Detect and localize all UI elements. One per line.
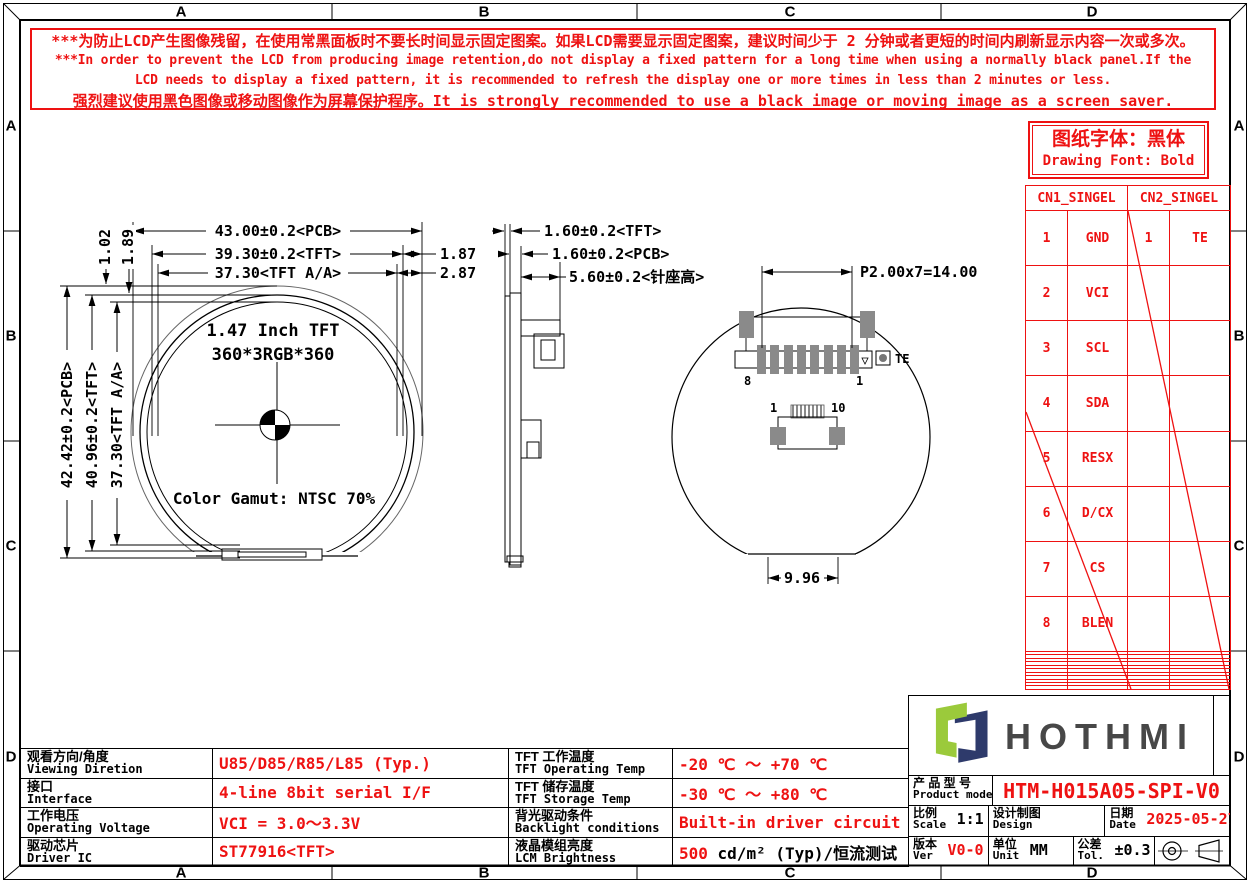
spec-value: U85/D85/R85/L85 (Typ.) bbox=[213, 749, 509, 779]
cn2-pin-no bbox=[1128, 431, 1170, 486]
zone-right-a: A bbox=[1234, 118, 1245, 135]
design-label-en: Design bbox=[993, 819, 1041, 831]
dim-flat-bottom: 9.96 bbox=[784, 569, 820, 587]
warning-line-1: ***为防止LCD产生图像残留，在使用常黑面板时不要长时间显示固定图案。如果LC… bbox=[32, 31, 1214, 51]
product-model-value: HTM-H015A05-SPI-V0 bbox=[993, 776, 1230, 805]
spec-label-en: Interface bbox=[27, 793, 206, 806]
front-view-drawing: 1.47 Inch TFT 360*3RGB*360 Color Gamut: … bbox=[120, 286, 435, 582]
p1-label: 1 bbox=[770, 401, 777, 415]
spec-label-en: Backlight conditions bbox=[515, 822, 666, 835]
spec-row-voltage: 工作电压Operating Voltage VCI = 3.0～3.3V 背光驱… bbox=[21, 808, 909, 838]
cn1-pin-no: 7 bbox=[1026, 541, 1068, 596]
spec-label-cn: 液晶模组亮度 bbox=[515, 839, 666, 852]
front-view-title: 1.47 Inch TFT bbox=[206, 321, 339, 341]
dim-height-tft: 40.96±0.2<TFT> bbox=[83, 362, 101, 488]
projection-method-icon bbox=[1155, 837, 1229, 865]
warning-line-3: LCD needs to display a fixed pattern, it… bbox=[32, 71, 1214, 91]
logo-row-divider bbox=[1213, 696, 1214, 776]
pin-row: 6D/CX bbox=[1026, 486, 1231, 541]
scale-design-date-row: 比例Scale 1:1 设计制图Design 日期Date 2025-05-27 bbox=[909, 806, 1230, 837]
cn2-pin-name bbox=[1170, 376, 1231, 431]
hothmi-logo-icon bbox=[917, 698, 1003, 776]
cn1-pin-name: SCL bbox=[1068, 321, 1128, 376]
spec-label-en: TFT Operating Temp bbox=[515, 763, 666, 776]
cn1-pin-no: 1 bbox=[1026, 211, 1068, 266]
pin-row: 8BLEN bbox=[1026, 596, 1231, 651]
spec-value: -20 ℃ ～ +70 ℃ bbox=[673, 749, 909, 779]
cn2-pin-name bbox=[1170, 431, 1231, 486]
engineering-drawing-canvas: 1.47 Inch TFT 360*3RGB*360 Color Gamut: … bbox=[0, 0, 1250, 883]
cn1-pin-no: 5 bbox=[1026, 431, 1068, 486]
tol-label-en: Tol. bbox=[1078, 850, 1105, 862]
dim-connector-pitch: P2.00x7=14.00 bbox=[860, 263, 977, 281]
zone-bottom-b: B bbox=[479, 865, 490, 882]
te-pad-label: TE bbox=[895, 352, 909, 366]
cn1-pin-name: BLEN bbox=[1068, 596, 1128, 651]
side-view-drawing: 1.60±0.2<TFT> 1.60±0.2<PCB> 5.60±0.2<针座高… bbox=[492, 222, 704, 567]
pin1-label: 1 bbox=[856, 374, 863, 388]
font-note-en: Drawing Font: Bold bbox=[1033, 152, 1204, 170]
spec-label-en: Operating Voltage bbox=[27, 822, 206, 835]
cn1-header: CN1_SINGEL bbox=[1026, 186, 1128, 211]
zone-top-c: C bbox=[785, 4, 796, 21]
zone-bottom-d: D bbox=[1087, 865, 1098, 882]
spec-value: 500 cd/m² (Typ)/恒流测试 bbox=[673, 837, 909, 867]
cn2-pin-name bbox=[1170, 486, 1231, 541]
dim-top-2: 1.89 bbox=[119, 229, 137, 265]
spec-label-en: Driver IC bbox=[27, 852, 206, 865]
pin-row: 4SDA bbox=[1026, 376, 1231, 431]
spec-label-cn: 驱动芯片 bbox=[27, 839, 206, 852]
product-label-en: Product model bbox=[913, 789, 988, 801]
date-label-en: Date bbox=[1109, 819, 1136, 831]
zone-top-d: D bbox=[1087, 4, 1098, 21]
logo-row: HOTHMI bbox=[909, 696, 1230, 776]
unit-value: MM bbox=[1030, 844, 1048, 856]
cn1-pin-no: 6 bbox=[1026, 486, 1068, 541]
dim-width-aa: 37.30<TFT A/A> bbox=[215, 264, 341, 282]
product-model-row: 产 品 型 号 Product model HTM-H015A05-SPI-V0 bbox=[909, 776, 1230, 806]
spec-table: 观看方向/角度Viewing Diretion U85/D85/R85/L85 … bbox=[20, 748, 909, 867]
pin-row: 5RESX bbox=[1026, 431, 1231, 486]
pin-row: 1GND1TE bbox=[1026, 211, 1231, 266]
dim-height-aa: 37.30<TFT A/A> bbox=[108, 362, 126, 488]
zone-bottom-a: A bbox=[176, 865, 187, 882]
zone-right-c: C bbox=[1234, 538, 1245, 555]
spec-label-en: Viewing Diretion bbox=[27, 763, 206, 776]
spec-row-viewing: 观看方向/角度Viewing Diretion U85/D85/R85/L85 … bbox=[21, 749, 909, 779]
font-note-cn: 图纸字体：黑体 bbox=[1033, 126, 1204, 152]
spec-value: ST77916<TFT> bbox=[213, 837, 509, 867]
ver-unit-tol-row: 版本Ver V0-0 单位Unit MM 公差Tol. ±0.3 bbox=[909, 837, 1230, 866]
unit-label-en: Unit bbox=[993, 850, 1020, 862]
zone-top-b: B bbox=[479, 4, 490, 21]
zone-top-a: A bbox=[176, 4, 187, 21]
spec-value: Built-in driver circuit bbox=[673, 808, 909, 838]
pin8-label: 8 bbox=[744, 374, 751, 388]
date-value: 2025-05-27 bbox=[1146, 813, 1230, 825]
zone-left-d: D bbox=[6, 749, 17, 766]
warning-line-4: 强烈建议使用黑色图像或移动图像作为屏幕保护程序。It is strongly r… bbox=[32, 91, 1214, 111]
tolerance-value: ±0.3 bbox=[1114, 844, 1150, 856]
spec-label-en: LCM Brightness bbox=[515, 852, 666, 865]
zone-right-b: B bbox=[1234, 328, 1245, 345]
scale-value: 1:1 bbox=[957, 813, 984, 825]
warning-line-2: ***In order to prevent the LCD from prod… bbox=[32, 51, 1214, 71]
cn2-pin-name bbox=[1170, 596, 1231, 651]
cn2-pin-no bbox=[1128, 541, 1170, 596]
version-value: V0-0 bbox=[947, 844, 983, 856]
drawing-font-note: 图纸字体：黑体 Drawing Font: Bold bbox=[1028, 121, 1209, 179]
cn2-pin-no bbox=[1128, 686, 1170, 690]
dim-gap-tft: 1.87 bbox=[440, 245, 476, 263]
front-view-resolution: 360*3RGB*360 bbox=[212, 345, 335, 365]
spec-value: 4-line 8bit serial I/F bbox=[213, 778, 509, 808]
spec-row-interface: 接口Interface 4-line 8bit serial I/F TFT 储… bbox=[21, 778, 909, 808]
pin-row: 7CS bbox=[1026, 541, 1231, 596]
scale-label-en: Scale bbox=[913, 819, 946, 831]
cn1-pin-name bbox=[1068, 686, 1128, 690]
cn2-header: CN2_SINGEL bbox=[1128, 186, 1231, 211]
dim-header-height: 5.60±0.2<针座高> bbox=[569, 268, 704, 286]
dim-width-pcb: 43.00±0.2<PCB> bbox=[215, 222, 341, 240]
pin-row: 2VCI bbox=[1026, 266, 1231, 321]
dim-tft-thickness: 1.60±0.2<TFT> bbox=[544, 222, 661, 240]
cn1-pin-no: 4 bbox=[1026, 376, 1068, 431]
cn1-pin-name: SDA bbox=[1068, 376, 1128, 431]
spec-label-cn: 接口 bbox=[27, 780, 206, 793]
cn2-pin-name bbox=[1170, 321, 1231, 376]
zone-right-d: D bbox=[1234, 749, 1245, 766]
dim-gap-aa: 2.87 bbox=[440, 264, 476, 282]
cn1-pin-name: D/CX bbox=[1068, 486, 1128, 541]
cn2-pin-name bbox=[1170, 686, 1231, 690]
pin-row bbox=[1026, 686, 1231, 690]
cn2-pin-name bbox=[1170, 541, 1231, 596]
cn2-pin-name: TE bbox=[1170, 211, 1231, 266]
spec-label-cn: TFT 储存温度 bbox=[515, 780, 666, 793]
front-view-gamut: Color Gamut: NTSC 70% bbox=[173, 489, 376, 508]
cn1-pin-name: GND bbox=[1068, 211, 1128, 266]
cn1-pin-no bbox=[1026, 686, 1068, 690]
brightness-unit: cd/m² (Typ)/恒流测试 bbox=[708, 844, 897, 863]
cn2-pin-no: 1 bbox=[1128, 211, 1170, 266]
zone-left-a: A bbox=[6, 118, 17, 135]
lcd-retention-warning: ***为防止LCD产生图像残留，在使用常黑面板时不要长时间显示固定图案。如果LC… bbox=[30, 28, 1216, 110]
back-view-drawing: P2.00x7=14.00 8 1 TE 1 10 9.96 bbox=[672, 263, 977, 587]
cn1-pin-name: VCI bbox=[1068, 266, 1128, 321]
cn1-pin-name: RESX bbox=[1068, 431, 1128, 486]
p10-label: 10 bbox=[831, 401, 845, 415]
spec-label-en: TFT Storage Temp bbox=[515, 793, 666, 806]
spec-value: -30 ℃ ～ +80 ℃ bbox=[673, 778, 909, 808]
dim-pcb-thickness: 1.60±0.2<PCB> bbox=[552, 245, 669, 263]
dim-top-1: 1.02 bbox=[96, 229, 114, 265]
cn2-pin-no bbox=[1128, 266, 1170, 321]
cn2-pin-no bbox=[1128, 321, 1170, 376]
pin-assignment-table: CN1_SINGELCN2_SINGEL1GND1TE2VCI3SCL4SDA5… bbox=[1025, 185, 1230, 690]
brand-name: HOTHMI bbox=[1005, 716, 1195, 758]
cn2-pin-no bbox=[1128, 596, 1170, 651]
zone-left-b: B bbox=[6, 328, 17, 345]
dim-width-tft: 39.30±0.2<TFT> bbox=[215, 245, 341, 263]
cn2-pin-name bbox=[1170, 266, 1231, 321]
cn1-pin-no: 3 bbox=[1026, 321, 1068, 376]
brightness-value: 500 bbox=[679, 844, 708, 863]
spec-value: VCI = 3.0～3.3V bbox=[213, 808, 509, 838]
ver-label-en: Ver bbox=[913, 850, 937, 862]
zone-left-c: C bbox=[6, 538, 17, 555]
dim-height-pcb: 42.42±0.2<PCB> bbox=[58, 362, 76, 488]
cn1-pin-no: 8 bbox=[1026, 596, 1068, 651]
cn2-pin-no bbox=[1128, 486, 1170, 541]
zone-bottom-c: C bbox=[785, 865, 796, 882]
spec-row-driver: 驱动芯片Driver IC ST77916<TFT> 液晶模组亮度LCM Bri… bbox=[21, 837, 909, 867]
cn1-pin-no: 2 bbox=[1026, 266, 1068, 321]
title-block: HOTHMI 产 品 型 号 Product model HTM-H015A05… bbox=[908, 695, 1230, 866]
pin-row: 3SCL bbox=[1026, 321, 1231, 376]
cn1-pin-name: CS bbox=[1068, 541, 1128, 596]
pin-table-header: CN1_SINGELCN2_SINGEL bbox=[1026, 186, 1231, 211]
cn2-pin-no bbox=[1128, 376, 1170, 431]
